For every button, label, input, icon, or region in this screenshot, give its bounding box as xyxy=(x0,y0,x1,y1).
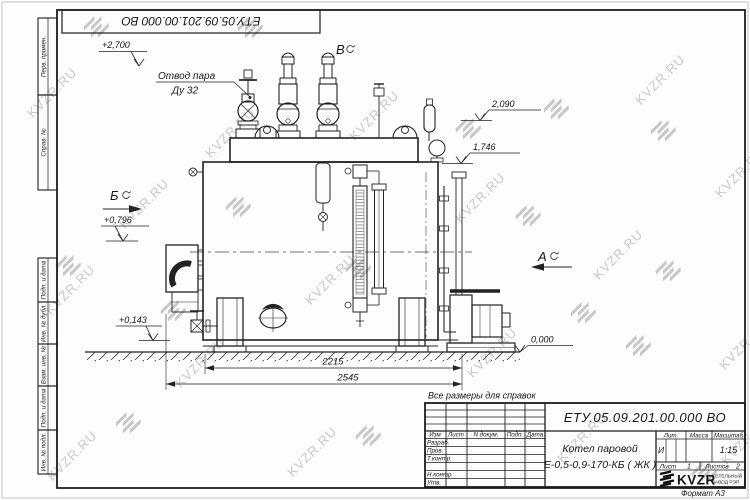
reference-note: Все размеры для справок xyxy=(428,391,537,401)
left-stub-valve xyxy=(189,168,203,176)
boiler-drawing xyxy=(85,45,573,390)
side-label-vzam: Взам. инв. № xyxy=(41,346,48,385)
elevation-1746: 1,746 xyxy=(473,142,496,152)
header-fitting xyxy=(374,84,384,138)
elevation-0000: 0,000 xyxy=(531,335,554,345)
side-label-perv: Перв. примен. xyxy=(41,36,48,77)
side-label-podp2: Подп. и дата xyxy=(41,388,48,427)
ground-line xyxy=(85,352,520,361)
side-label-inv-podl: Инв. № подл. xyxy=(41,433,48,471)
kvzr-logo-text: KVZR xyxy=(677,473,716,488)
row-tkontr: Т.контр. xyxy=(427,456,452,463)
water-level-gauge xyxy=(345,165,386,327)
product-name-line1: Котел паровой xyxy=(562,443,637,455)
probe-vessel xyxy=(316,163,330,231)
callout-steam-outlet: Отвод пара xyxy=(158,71,216,82)
view-label-v: В xyxy=(336,42,345,57)
sheets-label: Листов xyxy=(704,463,729,470)
row-prov: Пров. xyxy=(427,448,443,455)
kvzr-logo: KVZR КОТЕЛЬНЫЙ ЗАВОД РЭП xyxy=(660,472,743,488)
elevation-2700: +2,700 xyxy=(102,40,130,50)
drain-valve xyxy=(190,311,218,332)
pressure-gauge xyxy=(424,99,445,162)
kvzr-logo-sub1: КОТЕЛЬНЫЙ xyxy=(712,472,743,480)
view-label-b: Б xyxy=(110,188,119,203)
format-label: Формат А3 xyxy=(681,489,725,498)
scale-label: Масштаб xyxy=(714,433,743,440)
mass-label: Масса xyxy=(690,433,709,440)
elevation-2090: 2,090 xyxy=(491,99,515,109)
side-label-sprav: Справ. № xyxy=(41,128,48,156)
col-list: Лист xyxy=(447,432,464,439)
lit-label: Лит. xyxy=(663,433,679,440)
support-leg-front xyxy=(214,298,246,352)
col-podp: Подп. xyxy=(507,432,523,439)
sheet-label: Лист xyxy=(659,463,677,470)
sheets-value: 2 xyxy=(735,463,740,470)
support-leg-rear xyxy=(396,298,428,352)
safety-valve-1 xyxy=(276,53,300,138)
side-label-podp1: Подп. и дата xyxy=(41,260,48,299)
callout-dn32: Ду 32 xyxy=(171,86,198,97)
kvzr-logo-icon xyxy=(660,472,674,487)
row-razrab: Разраб. xyxy=(427,440,449,447)
steam-outlet-valve xyxy=(236,70,260,138)
drawing-sheet: KVZR.RUKVZR.RUKVZR.RUKVZR.RUKVZR.RUKVZR.… xyxy=(0,0,750,500)
dimension-2215: 2215 xyxy=(321,357,344,368)
col-data: Дата xyxy=(526,432,544,439)
kvzr-logo-sub2: ЗАВОД РЭП xyxy=(712,480,740,486)
boiler-body xyxy=(203,162,438,340)
col-ndoc: N докум. xyxy=(473,432,498,439)
row-utv: Утв. xyxy=(426,480,441,487)
elevation-0796: +0,796 xyxy=(104,215,132,225)
sheet-value: 1 xyxy=(687,463,691,470)
view-label-a: А xyxy=(537,249,547,264)
elevation-0143: +0,143 xyxy=(119,315,147,325)
top-stamp-number: ЕТУ.05.09.201.00.000 ВО xyxy=(121,14,260,28)
burner-box xyxy=(166,245,203,312)
top-header-drum xyxy=(230,138,418,162)
product-name-line2: Е-0,5-0,9-170-КБ ( ЖК ) xyxy=(544,459,656,471)
side-column-labels: Перв. примен. Справ. № Подп. и дата Инв.… xyxy=(41,14,261,471)
col-izm: Изм xyxy=(429,432,441,439)
side-label-inv-dubl: Инв. № дубл. xyxy=(41,304,48,342)
dimension-2545: 2545 xyxy=(336,373,359,384)
scale-value: 1:15 xyxy=(720,445,739,455)
manhole xyxy=(258,304,288,332)
fan-unit xyxy=(447,291,515,352)
title-doc-number: ЕТУ.05.09.201.00.000 ВО xyxy=(564,410,726,425)
row-nkontr: Н.контр. xyxy=(427,472,453,479)
blueprint-svg: Перв. примен. Справ. № Подп. и дата Инв.… xyxy=(0,0,750,500)
lifting-lug-right xyxy=(393,126,417,138)
callout-leader xyxy=(156,82,252,99)
lifting-lug-left xyxy=(255,126,279,138)
lit-value: И xyxy=(658,445,665,455)
safety-valve-2 xyxy=(316,53,340,138)
